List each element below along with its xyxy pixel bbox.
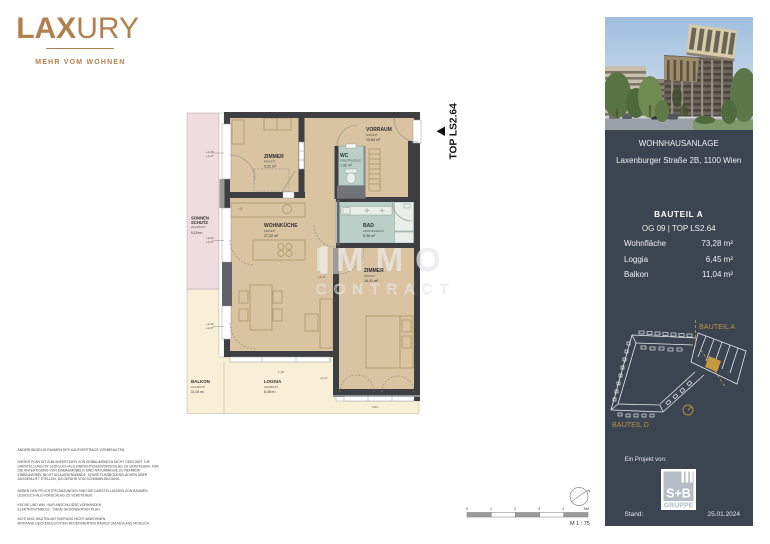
svg-text:ÄNDERUNGEN IM RAHMEN DES KAUFV: ÄNDERUNGEN IM RAHMEN DES KAUFVERTRAGS VO… — [18, 448, 125, 452]
svg-text:+2,27: +2,27 — [206, 154, 214, 158]
svg-text:PARKETT: PARKETT — [264, 160, 276, 164]
svg-text:S+B: S+B — [666, 487, 691, 501]
svg-text:9,15 m²: 9,15 m² — [191, 231, 203, 235]
svg-text:4: 4 — [562, 507, 564, 511]
svg-text:N: N — [588, 488, 591, 493]
svg-text:MONTAGE DECKENLEUCHTEN IM DEFI: MONTAGE DECKENLEUCHTEN IM DEFINIERTEN RA… — [18, 521, 150, 525]
svg-text:ZIMMER: ZIMMER — [364, 268, 384, 274]
svg-text:3: 3 — [538, 507, 540, 511]
svg-text:1,52 m²: 1,52 m² — [340, 164, 353, 168]
svg-text:BALKON: BALKON — [191, 379, 210, 384]
svg-text:9,21 m²: 9,21 m² — [264, 165, 277, 169]
svg-text:0: 0 — [466, 507, 468, 511]
svg-text:5,98 m²: 5,98 m² — [363, 234, 376, 238]
svg-text:TOP LS2.64: TOP LS2.64 — [449, 103, 460, 160]
svg-text:PARKETT: PARKETT — [264, 229, 276, 233]
svg-text:LEDIGLICH ALS VORSCHLAG ZU VER: LEDIGLICH ALS VORSCHLAG ZU VERSTEHEN. — [18, 493, 93, 497]
svg-text:27,32 m²: 27,32 m² — [264, 234, 279, 238]
svg-text:+1,17: +1,17 — [318, 275, 326, 279]
svg-text:1,18: 1,18 — [278, 370, 284, 374]
svg-text:11,04 m²: 11,04 m² — [191, 390, 205, 394]
svg-text:3,64: 3,64 — [372, 405, 378, 409]
svg-text:M 1 : 75: M 1 : 75 — [570, 521, 590, 527]
svg-text:PARKETT: PARKETT — [366, 133, 378, 137]
svg-text:16,41 m²: 16,41 m² — [364, 279, 379, 283]
svg-text:5M: 5M — [584, 507, 589, 511]
svg-text:SCHUTZ: SCHUTZ — [191, 220, 208, 225]
svg-text:IMMO: IMMO — [315, 241, 453, 278]
svg-text:HOLZROST: HOLZROST — [264, 385, 279, 389]
svg-text:+2,27: +2,27 — [206, 240, 214, 244]
svg-text:BAUTEIL A: BAUTEIL A — [699, 322, 735, 331]
svg-text:WOHNKÜCHE: WOHNKÜCHE — [264, 222, 298, 229]
svg-text:ZIMMER: ZIMMER — [264, 154, 284, 160]
svg-text:1: 1 — [490, 507, 492, 511]
svg-text:2: 2 — [514, 507, 516, 511]
svg-text:AUSSENLUFT STELLEN, DA GEFAHR: AUSSENLUFT STELLEN, DA GEFAHR VON SCHIMM… — [18, 477, 121, 481]
svg-text:VORRAUM: VORRAUM — [366, 127, 392, 133]
svg-text:6,45 m²: 6,45 m² — [264, 390, 276, 394]
svg-text:10,84 m²: 10,84 m² — [366, 138, 381, 142]
svg-text:LOGGIA: LOGGIA — [264, 379, 282, 384]
svg-text:ELEKTROSYMBOLE : SIEHE GESONDE: ELEKTROSYMBOLE : SIEHE GESONDERTEN PLAN — [18, 507, 101, 511]
svg-text:HOLZROST: HOLZROST — [191, 385, 206, 389]
svg-text:+2,27: +2,27 — [206, 326, 214, 330]
svg-text:HOLZROST: HOLZROST — [191, 225, 206, 229]
svg-text:+1,17: +1,17 — [320, 376, 328, 380]
svg-text:FEINSTEINZEUG: FEINSTEINZEUG — [340, 159, 361, 163]
svg-text:BAUTEIL D: BAUTEIL D — [612, 420, 649, 429]
svg-text:PARKETT: PARKETT — [364, 274, 376, 278]
svg-text:WC: WC — [340, 153, 349, 159]
svg-text:CONTRACT: CONTRACT — [316, 282, 456, 298]
svg-text:BAD: BAD — [363, 223, 374, 229]
svg-text:FEINSTEINZEUG: FEINSTEINZEUG — [363, 229, 384, 233]
svg-text:GRUPPE: GRUPPE — [663, 503, 693, 510]
